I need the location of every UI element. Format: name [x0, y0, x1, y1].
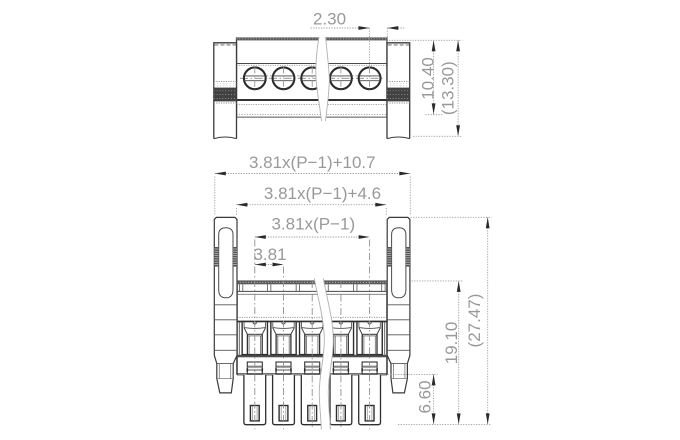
svg-text:3.81x(P−1)+10.7: 3.81x(P−1)+10.7 [249, 153, 376, 172]
svg-text:19.10: 19.10 [442, 322, 461, 365]
svg-text:2.30: 2.30 [313, 10, 346, 29]
svg-text:(13.30): (13.30) [439, 61, 458, 115]
svg-text:(27.47): (27.47) [465, 294, 484, 348]
svg-text:3.81: 3.81 [253, 245, 286, 264]
svg-text:3.81x(P−1): 3.81x(P−1) [271, 215, 355, 234]
svg-text:10.40: 10.40 [418, 57, 437, 100]
svg-text:6.60: 6.60 [416, 380, 435, 413]
svg-text:3.81x(P−1)+4.6: 3.81x(P−1)+4.6 [264, 184, 381, 203]
